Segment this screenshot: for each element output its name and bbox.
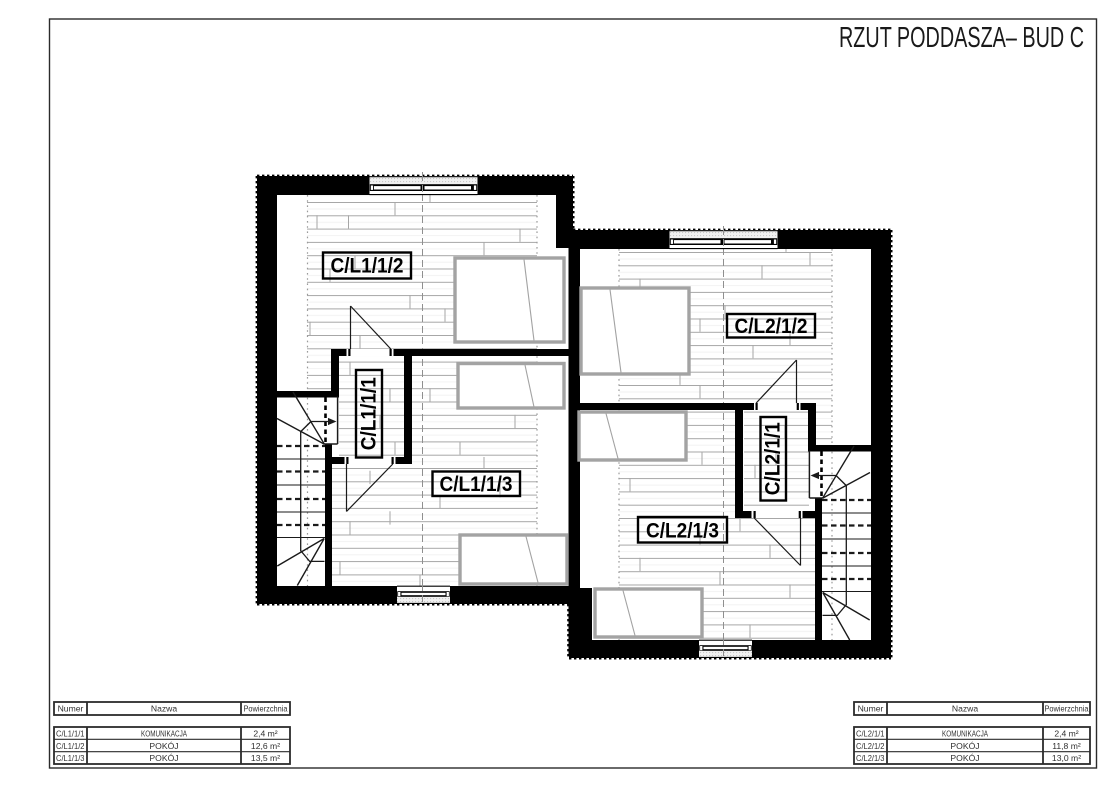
- svg-text:12,6 m²: 12,6 m²: [251, 741, 280, 751]
- svg-text:C/L1/1/1: C/L1/1/1: [56, 729, 85, 739]
- svg-text:Powierzchnia: Powierzchnia: [244, 704, 288, 714]
- svg-text:POKÓJ: POKÓJ: [950, 741, 979, 751]
- svg-text:C/L1/1/3: C/L1/1/3: [56, 753, 85, 763]
- svg-text:POKÓJ: POKÓJ: [149, 753, 178, 763]
- svg-text:Powierzchnia: Powierzchnia: [1045, 704, 1089, 714]
- svg-text:Nazwa: Nazwa: [952, 704, 978, 714]
- svg-text:Nazwa: Nazwa: [151, 704, 177, 714]
- svg-text:C/L2/1/1: C/L2/1/1: [762, 422, 785, 495]
- svg-text:RZUT PODDASZA– BUD C: RZUT PODDASZA– BUD C: [839, 22, 1084, 54]
- svg-text:POKÓJ: POKÓJ: [149, 741, 178, 751]
- svg-text:C/L2/1/2: C/L2/1/2: [856, 741, 885, 751]
- svg-text:KOMUNIKACJA: KOMUNIKACJA: [942, 729, 988, 739]
- svg-text:C/L2/1/1: C/L2/1/1: [856, 729, 885, 739]
- svg-text:C/L1/1/2: C/L1/1/2: [331, 255, 404, 278]
- svg-text:C/L2/1/3: C/L2/1/3: [856, 753, 885, 763]
- svg-text:2,4 m²: 2,4 m²: [253, 729, 277, 739]
- svg-text:13,5 m²: 13,5 m²: [251, 753, 280, 763]
- svg-text:11,8 m²: 11,8 m²: [1052, 741, 1081, 751]
- svg-text:C/L2/1/3: C/L2/1/3: [646, 520, 719, 543]
- svg-text:2,4 m²: 2,4 m²: [1054, 729, 1078, 739]
- svg-text:C/L2/1/2: C/L2/1/2: [735, 315, 808, 338]
- svg-text:Numer: Numer: [858, 704, 884, 714]
- svg-text:C/L1/1/3: C/L1/1/3: [440, 473, 513, 496]
- svg-text:C/L1/1/2: C/L1/1/2: [56, 741, 85, 751]
- svg-text:POKÓJ: POKÓJ: [950, 753, 979, 763]
- svg-text:C/L1/1/1: C/L1/1/1: [358, 377, 381, 450]
- svg-text:KOMUNIKACJA: KOMUNIKACJA: [141, 729, 187, 739]
- svg-text:Numer: Numer: [58, 704, 84, 714]
- svg-text:13,0 m²: 13,0 m²: [1052, 753, 1081, 763]
